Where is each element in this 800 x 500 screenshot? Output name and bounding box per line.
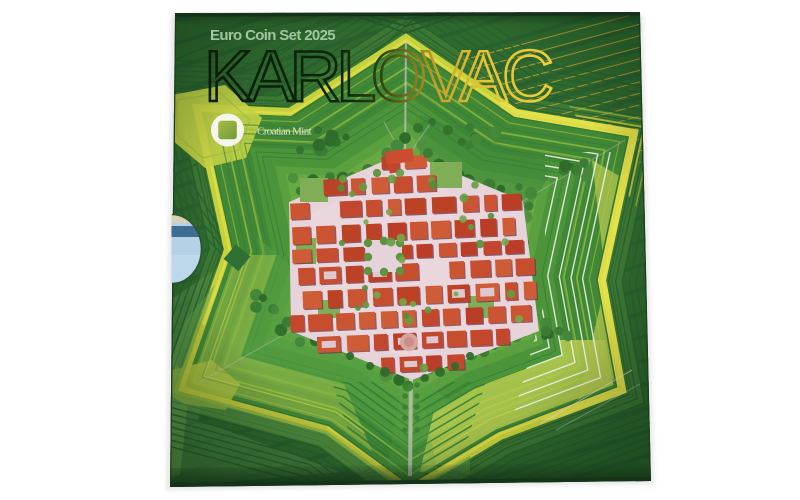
svg-text:Croatian Mint: Croatian Mint (257, 126, 312, 138)
svg-text:KARLOVAC: KARLOVAC (204, 37, 556, 117)
